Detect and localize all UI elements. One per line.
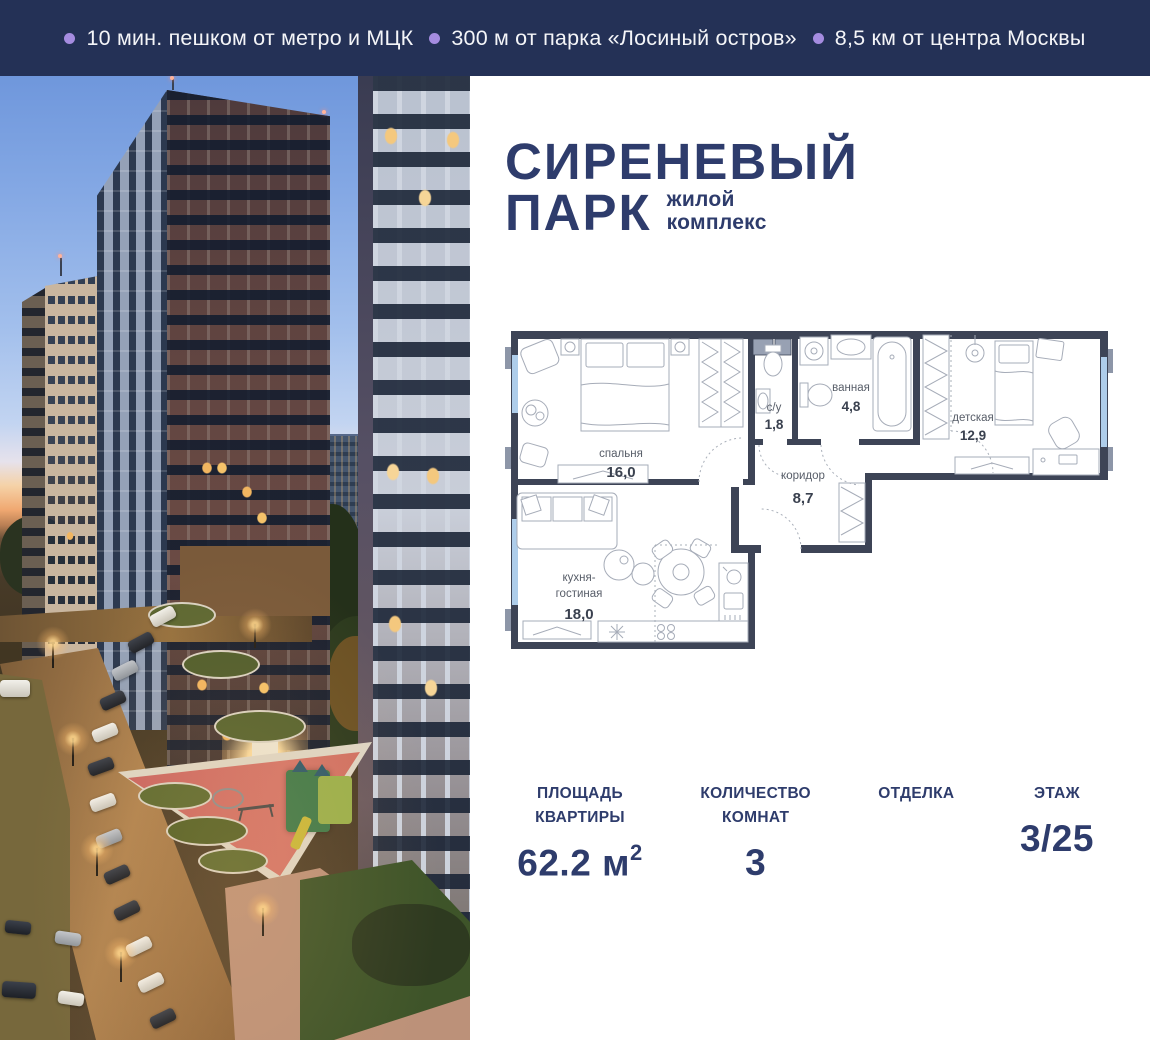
play-structure (318, 776, 352, 824)
bed-single (995, 341, 1033, 425)
closet (923, 335, 949, 439)
stat-rooms: КОЛИЧЕСТВО КОМНАТ 3 (676, 782, 836, 884)
wall (755, 439, 763, 445)
lamp-glow (238, 608, 272, 642)
wall (739, 545, 761, 553)
antenna (60, 258, 62, 276)
plant-leaf (536, 412, 544, 420)
logo-subtitle-line2: комплекс (667, 211, 767, 235)
wall (787, 439, 798, 445)
ceiling-lamp (966, 344, 984, 362)
bullet-icon (813, 33, 824, 44)
toilet-tank (765, 345, 781, 352)
wall (865, 473, 872, 545)
lamp-glow (104, 936, 138, 970)
wall (859, 439, 920, 445)
climbing-dome (212, 788, 244, 809)
stat-area-label: ПЛОЩАДЬ КВАРТИРЫ (505, 782, 655, 830)
logo-subtitle-line1: жилой (667, 188, 767, 212)
roof-light (322, 110, 326, 114)
lamp-glow (36, 626, 70, 660)
wall (913, 331, 920, 445)
washing-machine (800, 337, 828, 365)
shelf (1036, 338, 1064, 360)
stat-finish: ОТДЕЛКА (856, 782, 976, 884)
info-text-park: 300 м от парка «Лосиный остров» (451, 26, 796, 51)
info-text-center: 8,5 км от центра Москвы (835, 26, 1086, 51)
info-text-metro: 10 мин. пешком от метро и МЦК (86, 26, 413, 51)
wall (748, 552, 755, 649)
lit-windows-center-tower (167, 90, 330, 780)
lamp-glow (80, 832, 114, 866)
kitchen-counter-side (719, 563, 748, 621)
playground-bush (138, 782, 212, 810)
bullet-icon (429, 33, 440, 44)
chair (519, 442, 550, 468)
toilet (764, 352, 782, 376)
building-photo (0, 76, 470, 1040)
wall (801, 545, 872, 553)
window (512, 355, 518, 413)
coffee-table (604, 550, 634, 580)
stat-rooms-value: 3 (676, 842, 836, 884)
green-island (214, 710, 306, 743)
car (1, 981, 36, 999)
truck (0, 680, 30, 697)
room-area-bedroom: 16,0 (606, 464, 635, 481)
logo-title-line2: ПАРК (505, 187, 652, 238)
door-arc-entry (761, 509, 801, 549)
stat-rooms-label: КОЛИЧЕСТВО КОМНАТ (676, 782, 836, 830)
room-label-wc: с/у (767, 402, 782, 414)
listing-card: 10 мин. пешком от метро и МЦК 300 м от п… (0, 0, 1150, 1040)
room-label-kitchen-1: кухня- (562, 572, 595, 584)
room-area-kitchen: 18,0 (564, 606, 593, 623)
stat-area-value: 62.2 м2 (505, 842, 655, 884)
door-arc-bath (821, 445, 859, 485)
toilet-tank (800, 383, 808, 407)
room-area-bath: 4,8 (842, 399, 861, 414)
door-arc-bedroom (699, 438, 743, 482)
roof-light (170, 76, 174, 80)
stat-area-number: 62.2 м (517, 842, 630, 883)
room-area-corridor: 8,7 (793, 490, 814, 507)
facade-pad (505, 609, 511, 631)
logo-title-line1: СИРЕНЕВЫЙ (505, 136, 859, 187)
fridge-icon (609, 624, 625, 640)
stat-floor-label: ЭТАЖ (997, 782, 1117, 806)
room-area-children: 12,9 (960, 428, 986, 443)
stat-area: ПЛОЩАДЬ КВАРТИРЫ 62.2 м2 (505, 782, 655, 884)
plant-leaf (526, 405, 536, 415)
logo-subtitle: жилой комплекс (667, 188, 767, 238)
stat-floor-value: 3/25 (997, 818, 1117, 860)
bullet-icon (64, 33, 75, 44)
wall (798, 439, 821, 445)
hedge (352, 904, 470, 986)
facade-pad (505, 347, 511, 369)
car (4, 920, 31, 936)
room-label-children: детская (952, 412, 994, 424)
wall (743, 479, 755, 485)
coffee-table (632, 563, 654, 585)
facade-pad (505, 447, 511, 469)
stat-floor: ЭТАЖ 3/25 (997, 782, 1117, 884)
wall (731, 487, 739, 553)
green-island (182, 650, 260, 679)
nightstand (561, 339, 579, 355)
info-item-metro: 10 мин. пешком от метро и МЦК (64, 26, 413, 51)
lamp-glow (246, 892, 280, 926)
apartment-stats: ПЛОЩАДЬ КВАРТИРЫ 62.2 м2 КОЛИЧЕСТВО КОМН… (505, 782, 1117, 884)
wall (511, 642, 755, 649)
stat-area-sup: 2 (630, 840, 643, 865)
wall (792, 331, 798, 445)
roof-light (58, 254, 62, 258)
room-area-wc: 1,8 (765, 417, 784, 432)
complex-logo: СИРЕНЕВЫЙ ПАРК жилой комплекс (505, 136, 859, 238)
tv-dresser (523, 621, 591, 639)
top-info-bar: 10 мин. пешком от метро и МЦК 300 м от п… (0, 0, 1150, 76)
ceiling-lamp-dot (972, 350, 978, 356)
playground-bush (166, 816, 248, 846)
facade-pad (1108, 447, 1113, 471)
armchair (519, 338, 561, 376)
floor-plan: спальня 16,0 с/у 1,8 ванная 4,8 детская … (503, 327, 1113, 663)
room-label-corridor: коридор (781, 470, 825, 482)
facade-pad (1108, 349, 1113, 373)
info-item-park: 300 м от парка «Лосиный остров» (429, 26, 796, 51)
coffee-table-item (620, 556, 628, 564)
info-item-center: 8,5 км от центра Москвы (813, 26, 1086, 51)
room-label-bedroom: спальня (599, 448, 643, 460)
room-label-kitchen-2: гостиная (556, 588, 603, 600)
nightstand (671, 339, 689, 355)
lamp-glow (56, 722, 90, 756)
stat-finish-label: ОТДЕЛКА (856, 782, 976, 806)
dresser (955, 457, 1029, 474)
desk-chair (1046, 414, 1083, 451)
playground-bush (198, 848, 268, 874)
toilet (808, 384, 832, 406)
window (1101, 357, 1107, 447)
room-label-bath: ванная (832, 382, 870, 394)
